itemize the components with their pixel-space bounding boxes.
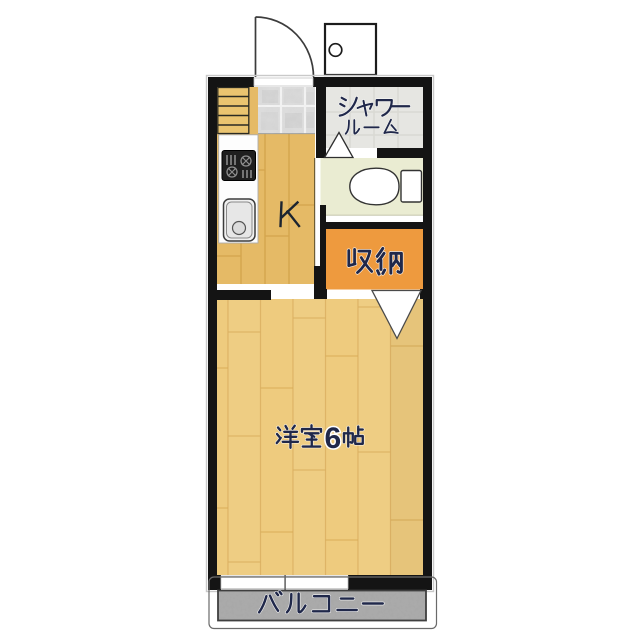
svg-text:6: 6 <box>325 422 342 455</box>
